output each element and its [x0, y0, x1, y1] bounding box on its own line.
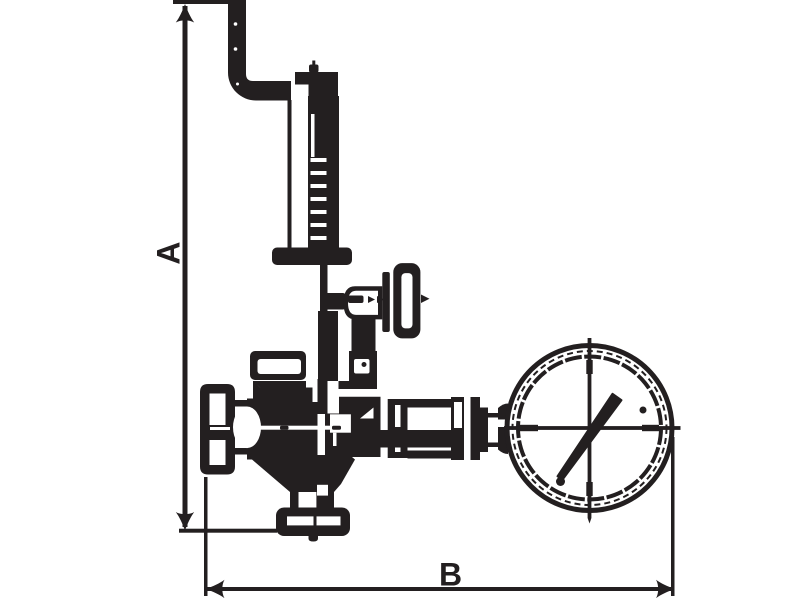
svg-text:B: B — [439, 557, 462, 593]
svg-text:A: A — [151, 241, 187, 264]
